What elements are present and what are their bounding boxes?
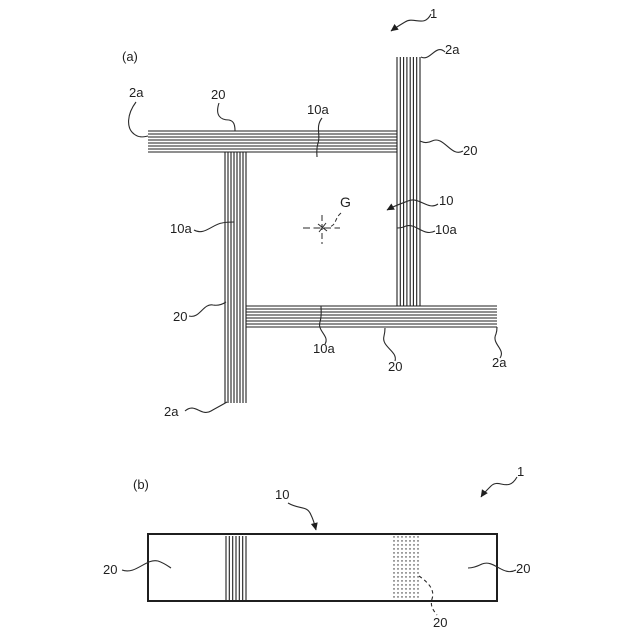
patent-figure-page: (a) 1 2a 20 10a 2a 20 G 10 10a 10a 20 10… bbox=[0, 0, 640, 640]
panel-b-label: (b) bbox=[133, 478, 149, 492]
bar-bottom-band bbox=[246, 306, 497, 327]
leader-assembly-1b-arrow bbox=[481, 477, 517, 497]
ref-corner-2a-bottom-right: 2a bbox=[492, 356, 506, 370]
ref-corner-2a-top-right: 2a bbox=[445, 43, 459, 57]
ref-bar-20-top: 20 bbox=[211, 88, 225, 102]
leader-corner-2a-bottom-right bbox=[495, 327, 501, 358]
ref-bar-20-left: 20 bbox=[173, 310, 187, 324]
ref-bar-20-b-left: 20 bbox=[103, 563, 117, 577]
leader-bar-20-right bbox=[420, 140, 463, 152]
side-view-body bbox=[148, 534, 497, 601]
ref-face-10a-top: 10a bbox=[307, 103, 329, 117]
bar-top-band bbox=[148, 131, 397, 152]
ref-face-10a-bottom: 10a bbox=[313, 342, 335, 356]
leader-face-10a-right bbox=[397, 226, 435, 233]
bar-right-band bbox=[397, 57, 420, 306]
ref-bar-20-right: 20 bbox=[463, 144, 477, 158]
ref-member-10b: 10 bbox=[275, 488, 289, 502]
leader-member-10b-arrow bbox=[288, 503, 316, 530]
leader-bar-20-top bbox=[218, 103, 235, 131]
bar-left-band bbox=[225, 152, 246, 403]
ref-bar-20-b-hidden: 20 bbox=[433, 616, 447, 630]
leader-g bbox=[329, 213, 341, 227]
leader-assembly-1-arrow bbox=[391, 14, 431, 31]
leader-bar-20-left-lower bbox=[189, 302, 226, 316]
ref-face-10a-right: 10a bbox=[435, 223, 457, 237]
panel-a-label: (a) bbox=[122, 50, 138, 64]
figure-artwork bbox=[0, 0, 640, 640]
leader-member-10-arrow bbox=[387, 200, 438, 210]
ref-corner-2a-bottom-left: 2a bbox=[164, 405, 178, 419]
ref-assembly-b: 1 bbox=[517, 465, 524, 479]
leader-corner-2a-bottom-left bbox=[185, 402, 227, 412]
leader-bar-20-bottom bbox=[384, 328, 396, 361]
ref-face-10a-left: 10a bbox=[170, 222, 192, 236]
ref-assembly-a: 1 bbox=[430, 7, 437, 21]
ref-member-10: 10 bbox=[439, 194, 453, 208]
ref-corner-2a-top-left: 2a bbox=[129, 86, 143, 100]
leader-corner-2a-top-left bbox=[129, 102, 148, 137]
ref-bar-20-b-right: 20 bbox=[516, 562, 530, 576]
leader-corner-2a-top-right bbox=[421, 50, 445, 58]
ref-bar-20-bottom: 20 bbox=[388, 360, 402, 374]
gravity-center-mark bbox=[303, 213, 341, 244]
joint-solid-lines bbox=[226, 536, 246, 600]
ref-gravity-center: G bbox=[340, 195, 351, 210]
